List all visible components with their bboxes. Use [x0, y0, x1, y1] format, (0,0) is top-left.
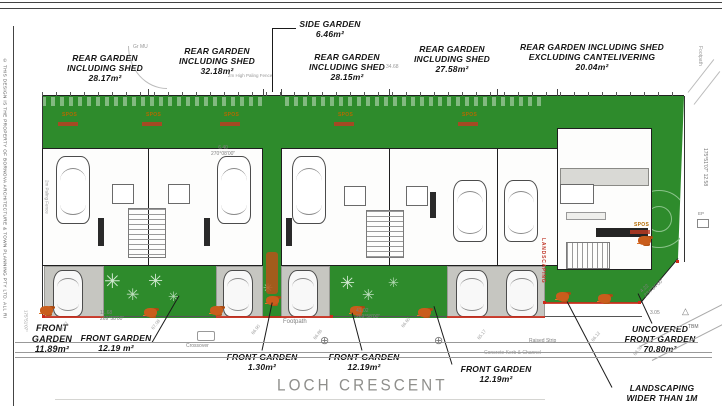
spos-label: SPOS — [146, 112, 161, 118]
spos-value-mark — [334, 122, 354, 126]
kitchen-counter — [98, 218, 104, 246]
area-value: 28.15m² — [309, 72, 385, 82]
front-garden-label-5: FRONT GARDEN 12.19m² — [461, 364, 532, 384]
shrub-icon — [266, 296, 279, 305]
car-icon — [506, 270, 538, 317]
car-icon — [217, 156, 251, 224]
area-value: 1.30m² — [227, 362, 298, 372]
car-icon — [223, 270, 253, 317]
red-boundary-segment — [216, 316, 330, 318]
rear-fence-ticks — [42, 92, 684, 96]
kitchen-counter — [204, 218, 210, 246]
car-icon — [504, 180, 538, 242]
footpath-curve — [694, 71, 721, 105]
front-garden-label-4: FRONT GARDEN 12.19m² — [329, 352, 400, 372]
leader-line — [272, 28, 296, 29]
dim-tick — [497, 89, 498, 96]
boundary-marker — [543, 301, 546, 304]
boundary-marker — [42, 315, 45, 318]
spos-label: SPOS — [462, 112, 477, 118]
car-icon — [456, 270, 488, 317]
corridor-planting — [266, 252, 278, 294]
survey-mark-icon: ⊕ — [320, 334, 329, 347]
sheet-left-line — [13, 26, 14, 406]
dim-1168: 11.68 269°58'00" — [100, 310, 124, 322]
area-value: 20.04m² — [520, 62, 664, 72]
footpath-right-label: Footpath — [697, 46, 703, 66]
red-boundary-segment — [44, 316, 104, 318]
left-boundary-bearing: 175°51'07" — [23, 310, 28, 332]
dim-3468: 34.68 — [386, 64, 399, 70]
area-value: 28.17m² — [67, 73, 143, 83]
tree-icon: ✳ — [148, 272, 163, 290]
front-garden-label-3: FRONT GARDEN 1.30m² — [227, 352, 298, 372]
copyright-text: © THIS DESIGN IS THE PROPERTY OF BORNOVA… — [2, 58, 8, 318]
spos-value-mark — [630, 230, 650, 234]
right-boundary-bearing: 175°51'07" 12.58 — [702, 148, 708, 186]
shrub-icon — [418, 308, 431, 317]
shrub-icon — [144, 308, 157, 317]
tree-icon: ✳ — [362, 288, 375, 303]
leader-line — [272, 28, 273, 92]
car-icon — [288, 270, 318, 317]
area-value: 27.58m² — [414, 64, 490, 74]
kerb-label: Concrete Kerb & Channel — [484, 350, 541, 356]
site-plan-sheet: © THIS DESIGN IS THE PROPERTY OF BORNOVA… — [0, 0, 722, 406]
car-icon — [292, 156, 326, 224]
street-name: LOCH CRESCENT — [277, 376, 448, 395]
stairs-unit-3-4 — [366, 210, 404, 258]
grmu-label: Gr MU — [133, 44, 148, 50]
boundary-marker — [676, 260, 679, 263]
kitchen-island — [566, 212, 606, 220]
front-garden-label-1: FRONT GARDEN 11.89m² — [32, 323, 72, 355]
shrub-icon — [638, 236, 651, 245]
tree-icon: ✳ — [340, 274, 355, 292]
tree-icon: ✳ — [104, 272, 121, 292]
tree-icon: ✳ — [388, 276, 399, 289]
dining-table — [406, 186, 428, 206]
dim-tick — [557, 89, 558, 96]
car-icon — [56, 156, 90, 224]
tree-icon: ✳ — [126, 288, 139, 304]
rear-garden-label-2: REAR GARDEN INCLUDING SHED 32.18m² — [179, 46, 255, 76]
dim-tick — [148, 89, 149, 96]
red-boundary-segment — [545, 302, 640, 304]
landscaping-side-label: LANDSCAPING — [540, 238, 546, 283]
dining-table — [112, 184, 134, 204]
spos-label: SPOS — [62, 112, 77, 118]
side-garden-label: SIDE GARDEN 6.46m² — [299, 19, 360, 39]
shrub-icon — [598, 294, 611, 303]
spos-label: SPOS — [338, 112, 353, 118]
area-value: 12.19m² — [461, 374, 532, 384]
raised-strip-label: Raised Strip — [529, 338, 556, 344]
spot-level: 65.17 — [476, 329, 487, 341]
spot-level: 66.90 — [250, 324, 261, 336]
kitchen-counter — [430, 192, 436, 218]
stairs-unit-1-2 — [128, 208, 166, 258]
road-edge-line — [55, 399, 545, 400]
spos-value-mark — [142, 122, 162, 126]
ep-label: EP — [698, 211, 704, 216]
red-boundary-segment — [447, 316, 545, 318]
rear-garden-label-4: REAR GARDEN INCLUDING SHED 27.58m² — [414, 44, 490, 74]
spot-level: 66.12 — [590, 331, 601, 343]
spos-value-mark — [58, 122, 78, 126]
sheet-top-line-1 — [0, 2, 722, 3]
tbm-label: TBM — [688, 324, 699, 330]
area-value: 6.46m² — [299, 29, 360, 39]
stairs-unit-6 — [566, 242, 610, 269]
dim-4102: 41.02 269°58'00" — [356, 308, 380, 320]
boundary-right — [684, 96, 685, 262]
spos-label: SPOS — [224, 112, 239, 118]
leader-line — [567, 301, 613, 387]
shrub-icon — [40, 306, 53, 315]
boundary-front — [42, 316, 642, 317]
area-value: 12.19m² — [329, 362, 400, 372]
landscaping-wider-label: LANDSCAPING WIDER THAN 1M — [626, 383, 697, 403]
boundary-marker — [330, 315, 333, 318]
spot-level: 66.60 — [400, 317, 411, 329]
spos-value-mark — [458, 122, 478, 126]
dining-table — [560, 184, 594, 204]
dim-tick — [263, 89, 264, 96]
dim-tick — [281, 89, 282, 96]
spos-label: SPOS — [634, 222, 649, 228]
sheet-top-line-2 — [0, 8, 722, 9]
area-value: 11.89m² — [32, 344, 72, 355]
rear-garden-paving — [42, 97, 562, 106]
footpath-label: Footpath — [283, 319, 307, 326]
triangle-marker-icon: △ — [682, 306, 689, 317]
rear-garden-label-5: REAR GARDEN INCLUDING SHED EXCLUDING CAN… — [520, 42, 664, 72]
kerb-line-1 — [15, 352, 712, 353]
kitchen-counter — [286, 218, 292, 246]
shrub-icon — [556, 292, 569, 301]
crossover-label: Crossover — [186, 343, 209, 349]
fence-left-label: 2m Paling Fence — [44, 180, 49, 214]
fence-top-label: 2m High Paling Fence — [228, 73, 272, 78]
rear-garden-label-3: REAR GARDEN INCLUDING SHED 28.15m² — [309, 52, 385, 82]
car-icon — [453, 180, 487, 242]
ep-marker — [697, 219, 709, 228]
spos-value-mark — [220, 122, 240, 126]
footpath-line — [15, 342, 698, 343]
front-garden-label-2: FRONT GARDEN 12.19 m² — [81, 333, 152, 353]
dining-table — [168, 184, 190, 204]
crossover-marker — [197, 331, 215, 341]
kerb-line-2 — [15, 357, 712, 358]
dim-305: 3.05 — [650, 310, 660, 316]
dim-tick — [389, 89, 390, 96]
dim-640: 6.40 270°08'00" — [211, 145, 235, 157]
dining-table — [344, 186, 366, 206]
survey-mark-icon: ⊕ — [434, 334, 443, 347]
rear-garden-label-1: REAR GARDEN INCLUDING SHED 28.17m² — [67, 53, 143, 83]
shrub-icon — [210, 306, 223, 315]
car-icon — [53, 270, 83, 317]
